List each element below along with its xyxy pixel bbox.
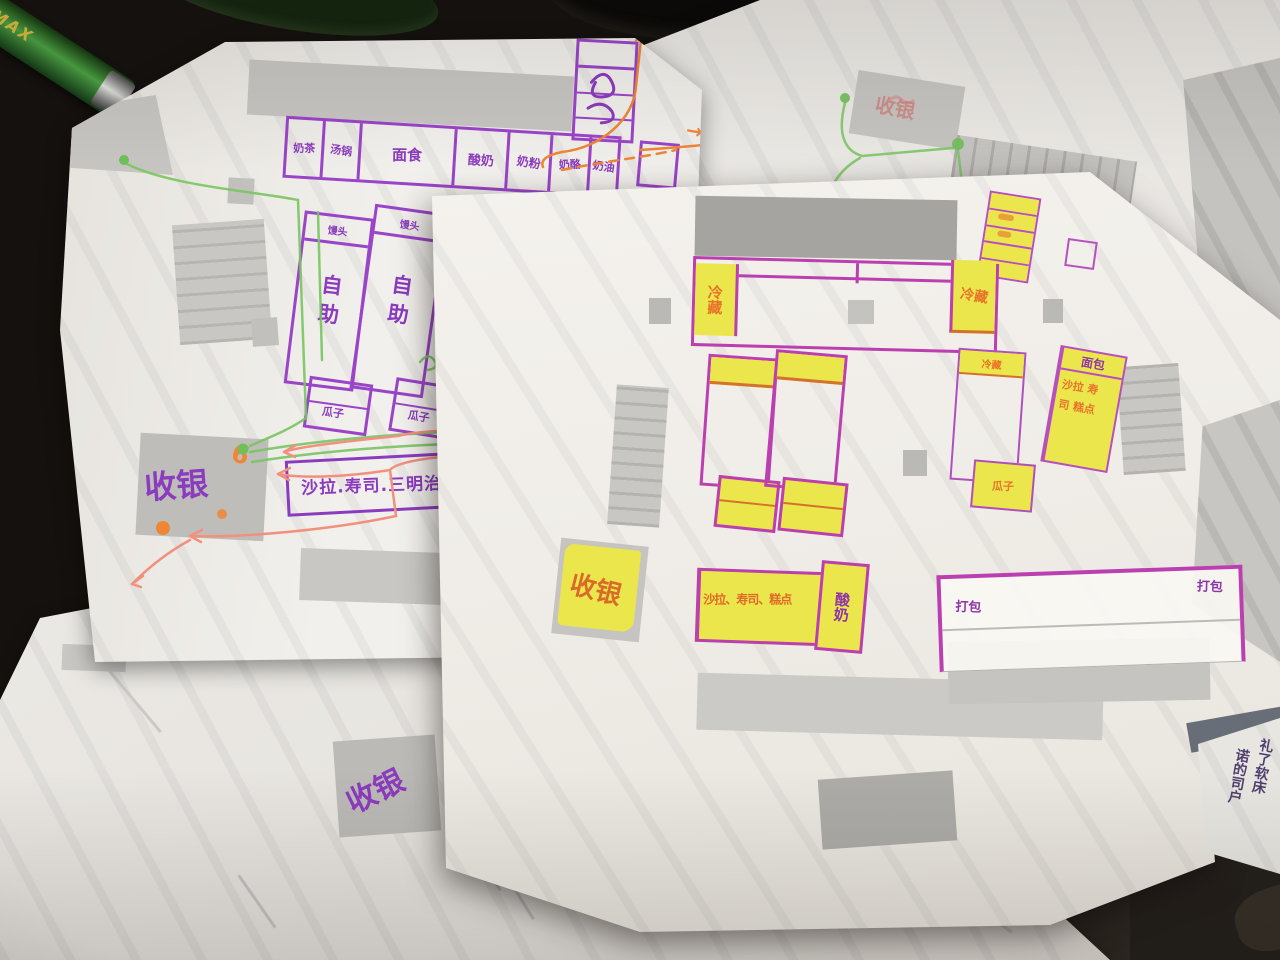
strip-header-label: 面包 [1080,352,1107,373]
printed-square [649,298,671,324]
cold-shelf-unit: 冷藏 冷藏 [691,256,999,354]
shelf-yellow-cap [710,357,776,388]
pack-box-inner-line [942,619,1240,631]
yogurt-cell: 酸奶 [814,560,870,654]
photo-scene: MAX 收银 [0,0,1280,960]
shelf-inner-line [739,274,957,283]
shelf-yellow-cap [777,352,845,385]
printed-square [1043,299,1063,323]
printed-square [903,450,927,476]
pack-box: 打包 打包 [936,565,1245,673]
stairs-rungs [607,384,669,527]
thin-shelf-top-label: 冷藏 [981,355,1002,371]
strip-body-cell: 沙拉 寿司 糕点 [1053,369,1110,423]
orange-mark [997,230,1012,238]
front-top-banner [694,196,957,261]
yogurt-label: 酸奶 [830,591,854,623]
thin-shelf-top-cell: 冷藏 [959,350,1025,378]
orange-mark [998,213,1015,221]
food-bar-label: 沙拉、寿司、糕点 [703,591,791,608]
base-row [783,480,845,510]
front-right-stairs [1116,363,1185,475]
food-bar: 沙拉、寿司、糕点 [695,568,827,646]
vertical-shelf-b-base [777,477,848,538]
cold-cell-left: 冷藏 [694,263,739,336]
front-cashier-box: 收银 [551,538,649,643]
strip-body-label: 沙拉 寿司 糕点 [1057,378,1099,417]
cold-cell-right: 冷藏 [949,260,996,334]
cold-left-label: 冷藏 [704,284,726,315]
small-magenta-box [1064,238,1098,270]
front-bottom-dark-square [818,770,958,849]
pack-label-right: 打包 [1197,575,1224,595]
stairs-rungs [1116,363,1185,475]
vertical-shelf-b [764,349,848,493]
front-paper-wrap: 冷藏 冷藏 [0,0,1280,960]
thin-shelf-bottom-label: 瓜子 [992,478,1014,494]
shelf-mid-tick [856,263,860,283]
front-left-stairs [607,384,669,527]
cold-right-label: 冷藏 [959,283,990,307]
pack-label-left: 打包 [955,596,982,616]
thin-shelf-base: 瓜子 [970,459,1036,512]
front-paper: 冷藏 冷藏 [0,0,1280,960]
